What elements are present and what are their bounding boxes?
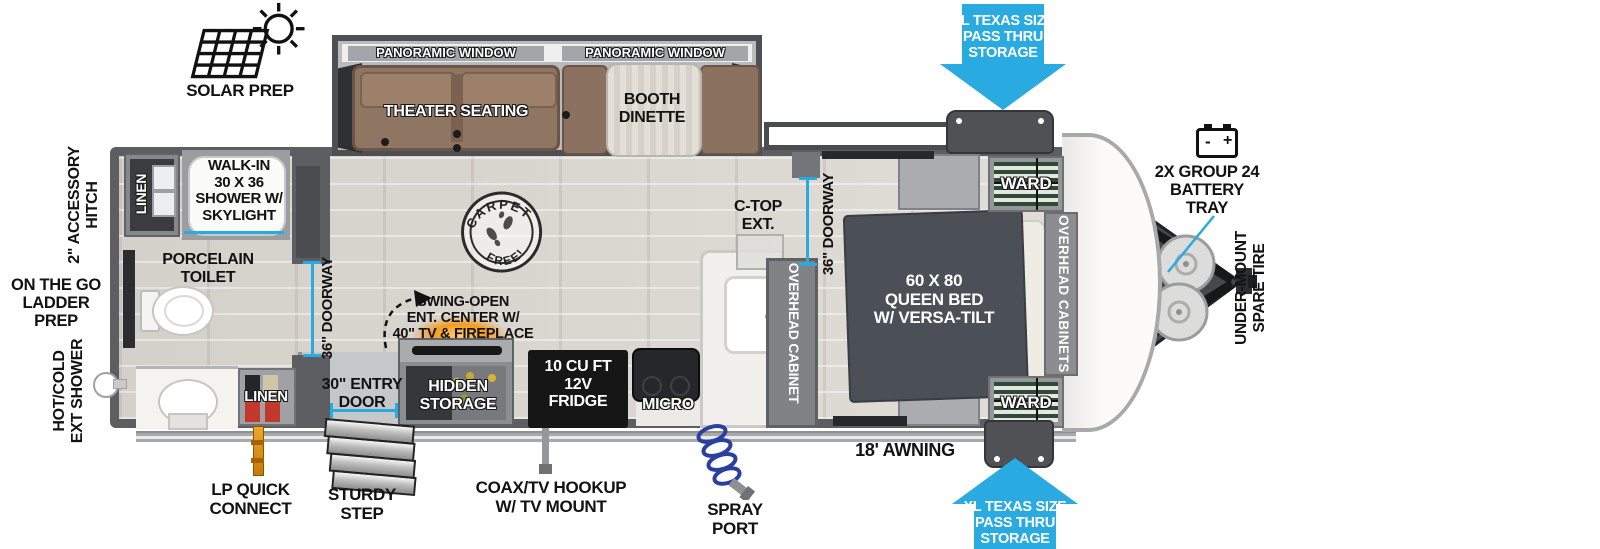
pass-thru-door-top	[946, 110, 1054, 154]
lp-pipe	[253, 426, 264, 476]
shower-label: WALK-IN 30 X 36 SHOWER W/ SKYLIGHT	[176, 158, 302, 224]
lp-pipe-band	[251, 440, 264, 445]
hidden-storage-label: HIDDEN STORAGE	[406, 378, 510, 413]
battery-plus: +	[1223, 132, 1232, 150]
latch-dot	[1038, 118, 1044, 124]
coax-connector	[539, 464, 552, 474]
bedroom-doorwall-stub	[792, 152, 820, 178]
accessory-hitch-label: 2" ACCESSORY HITCH	[66, 140, 108, 270]
bottom-wall-window-strip	[833, 416, 907, 426]
nightstand-top	[898, 154, 980, 210]
bath-vanity	[136, 366, 238, 429]
micro-label: MICRO	[630, 396, 706, 414]
bath-doorway-label: 36" DOORWAY	[320, 247, 342, 369]
carpet-free-stamp: CARPET FREE!	[453, 183, 551, 285]
booth-bench-right	[700, 65, 760, 155]
shower-skylight-line	[184, 231, 284, 234]
toilet-seat-ring	[164, 295, 204, 327]
lp-quick-connect-label: LP QUICK CONNECT	[193, 481, 308, 518]
micro-dial	[642, 376, 662, 396]
kitchen-top-window	[764, 122, 962, 150]
micro-dial	[670, 376, 690, 396]
cupholder	[381, 138, 389, 146]
cupholder	[453, 144, 461, 152]
swing-open-arc	[376, 288, 454, 352]
bedroom-doorway-label: 36" DOORWAY	[821, 165, 843, 283]
cupholder	[562, 111, 570, 119]
pass-thru-bottom-label: XL TEXAS SIZE PASS THRU STORAGE	[958, 500, 1072, 548]
bath-sink-base	[168, 413, 208, 430]
ctop-ext-label: C-TOP EXT.	[714, 198, 802, 233]
ladder-prep-label: ON THE GO LADDER PREP	[0, 276, 112, 330]
slideout-living: PANORAMIC WINDOW PANORAMIC WINDOW THEATE…	[332, 35, 762, 156]
overhead-cabinet-label: OVERHEAD CABINET	[781, 251, 801, 415]
latch-dot	[956, 118, 962, 124]
microwave	[632, 348, 700, 402]
ext-shower-label: HOT/COLD EXT SHOWER	[51, 331, 93, 451]
bedroom-doorway-measure	[806, 178, 809, 266]
awning-label: 18' AWNING	[843, 441, 967, 461]
floorplan-canvas: 18' AWNING PANORAMIC WINDOW PANORAMIC WI…	[0, 0, 1600, 549]
battery-terminal	[1223, 124, 1231, 129]
toilet-label: PORCELAIN TOILET	[148, 251, 268, 286]
spray-port-label: SPRAY PORT	[683, 501, 787, 538]
awning-line-highlight	[136, 436, 1076, 439]
entry-door-measure	[331, 409, 397, 412]
pass-thru-top-label: XL TEXAS SIZE PASS THRU STORAGE	[946, 14, 1060, 62]
cupholder	[453, 130, 461, 138]
toilet-bowl	[152, 286, 214, 336]
solar-prep-icon	[188, 0, 312, 88]
coax-cable	[542, 428, 549, 468]
entry-measure-cap-right	[395, 403, 398, 418]
ext-shower-stem	[113, 379, 127, 389]
ward-top-label: WARD	[988, 175, 1064, 194]
linen-top-label: LINEN	[134, 159, 152, 229]
solar-prep-label: SOLAR PREP	[178, 82, 302, 101]
spare-tire-label: UNDER-MOUNT SPARE TIRE	[1233, 225, 1273, 351]
booth-dinette-label: BOOTH DINETTE	[602, 91, 702, 126]
ward-bottom-label: WARD	[988, 394, 1064, 413]
bedroom-measure-cap-top	[799, 177, 817, 180]
linen-shelf	[152, 191, 176, 217]
panoramic-window-left-label: PANORAMIC WINDOW	[348, 46, 544, 60]
battery-tray-label: 2X GROUP 24 BATTERY TRAY	[1143, 163, 1271, 217]
battery-pointer-line	[1162, 212, 1220, 276]
queen-bed-label: 60 X 80 QUEEN BED W/ VERSA-TILT	[846, 272, 1022, 328]
linen-shelf	[152, 165, 176, 191]
sturdy-step-label: STURDY STEP	[312, 486, 412, 523]
top-wall-window-strip	[822, 151, 934, 159]
overhead-cabinets-label: OVERHEAD CABINETS	[1052, 211, 1070, 377]
battery-minus: -	[1205, 132, 1211, 152]
lp-pipe-band	[251, 458, 264, 463]
battery-terminal	[1204, 124, 1212, 129]
fridge-label: 10 CU FT 12V FRIDGE	[528, 358, 628, 411]
bath-doorway-measure	[311, 262, 314, 356]
spray-port-hose	[690, 422, 762, 500]
panoramic-window-right-label: PANORAMIC WINDOW	[562, 46, 748, 60]
ladder-prep-strip	[123, 250, 135, 348]
coax-tv-label: COAX/TV HOOKUP W/ TV MOUNT	[468, 479, 634, 516]
entry-measure-cap-left	[330, 403, 333, 418]
theater-seating-label: THEATER SEATING	[356, 103, 556, 121]
linen-bottom-label: LINEN	[235, 389, 297, 406]
battery-icon: - +	[1196, 128, 1238, 158]
